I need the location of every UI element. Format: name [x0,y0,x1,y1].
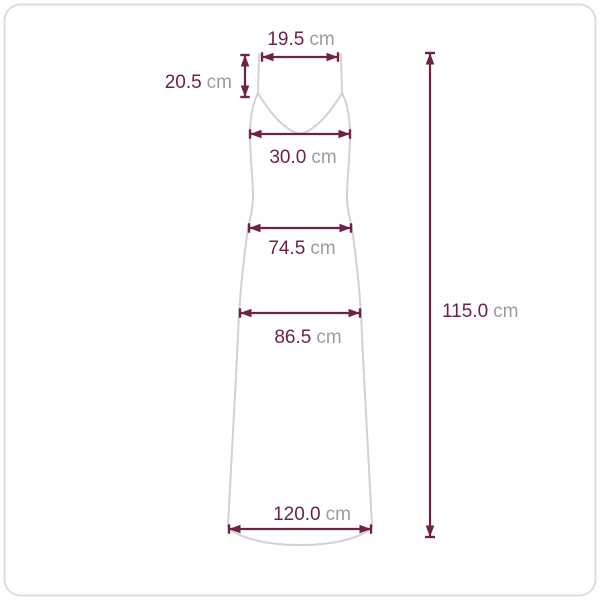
measure-strap-length: 20.5cm [165,55,250,97]
measure-total-length: 115.0cm [425,53,518,537]
dress-strap-left [258,54,259,93]
measure-strap-span: 19.5cm [262,29,338,62]
measure-bust-width-label: 30.0cm [269,147,336,168]
measure-total-length-label: 115.0cm [442,301,518,322]
measure-hip-width: 86.5cm [240,308,360,348]
measure-strap-length-label: 20.5cm [165,72,232,93]
measure-bust-width: 30.0cm [250,129,350,168]
dress-outline [228,54,372,545]
measure-strap-span-label: 19.5cm [267,29,334,50]
measurement-diagram: 19.5cm 20.5cm 30.0cm 74.5cm 86.5cm [0,0,600,600]
measure-hem-width-label: 120.0cm [273,504,351,525]
measure-hem-width: 120.0cm [229,504,371,534]
dress-side-seam-right [342,93,372,527]
dress-strap-right [341,54,342,93]
dress-side-seam-left [228,93,258,527]
diagram-canvas: 19.5cm 20.5cm 30.0cm 74.5cm 86.5cm [0,0,600,600]
measure-waist-width-label: 74.5cm [268,238,335,259]
measure-hip-width-label: 86.5cm [274,327,341,348]
measure-waist-width: 74.5cm [249,223,351,259]
dress-neckline-v [258,93,342,134]
